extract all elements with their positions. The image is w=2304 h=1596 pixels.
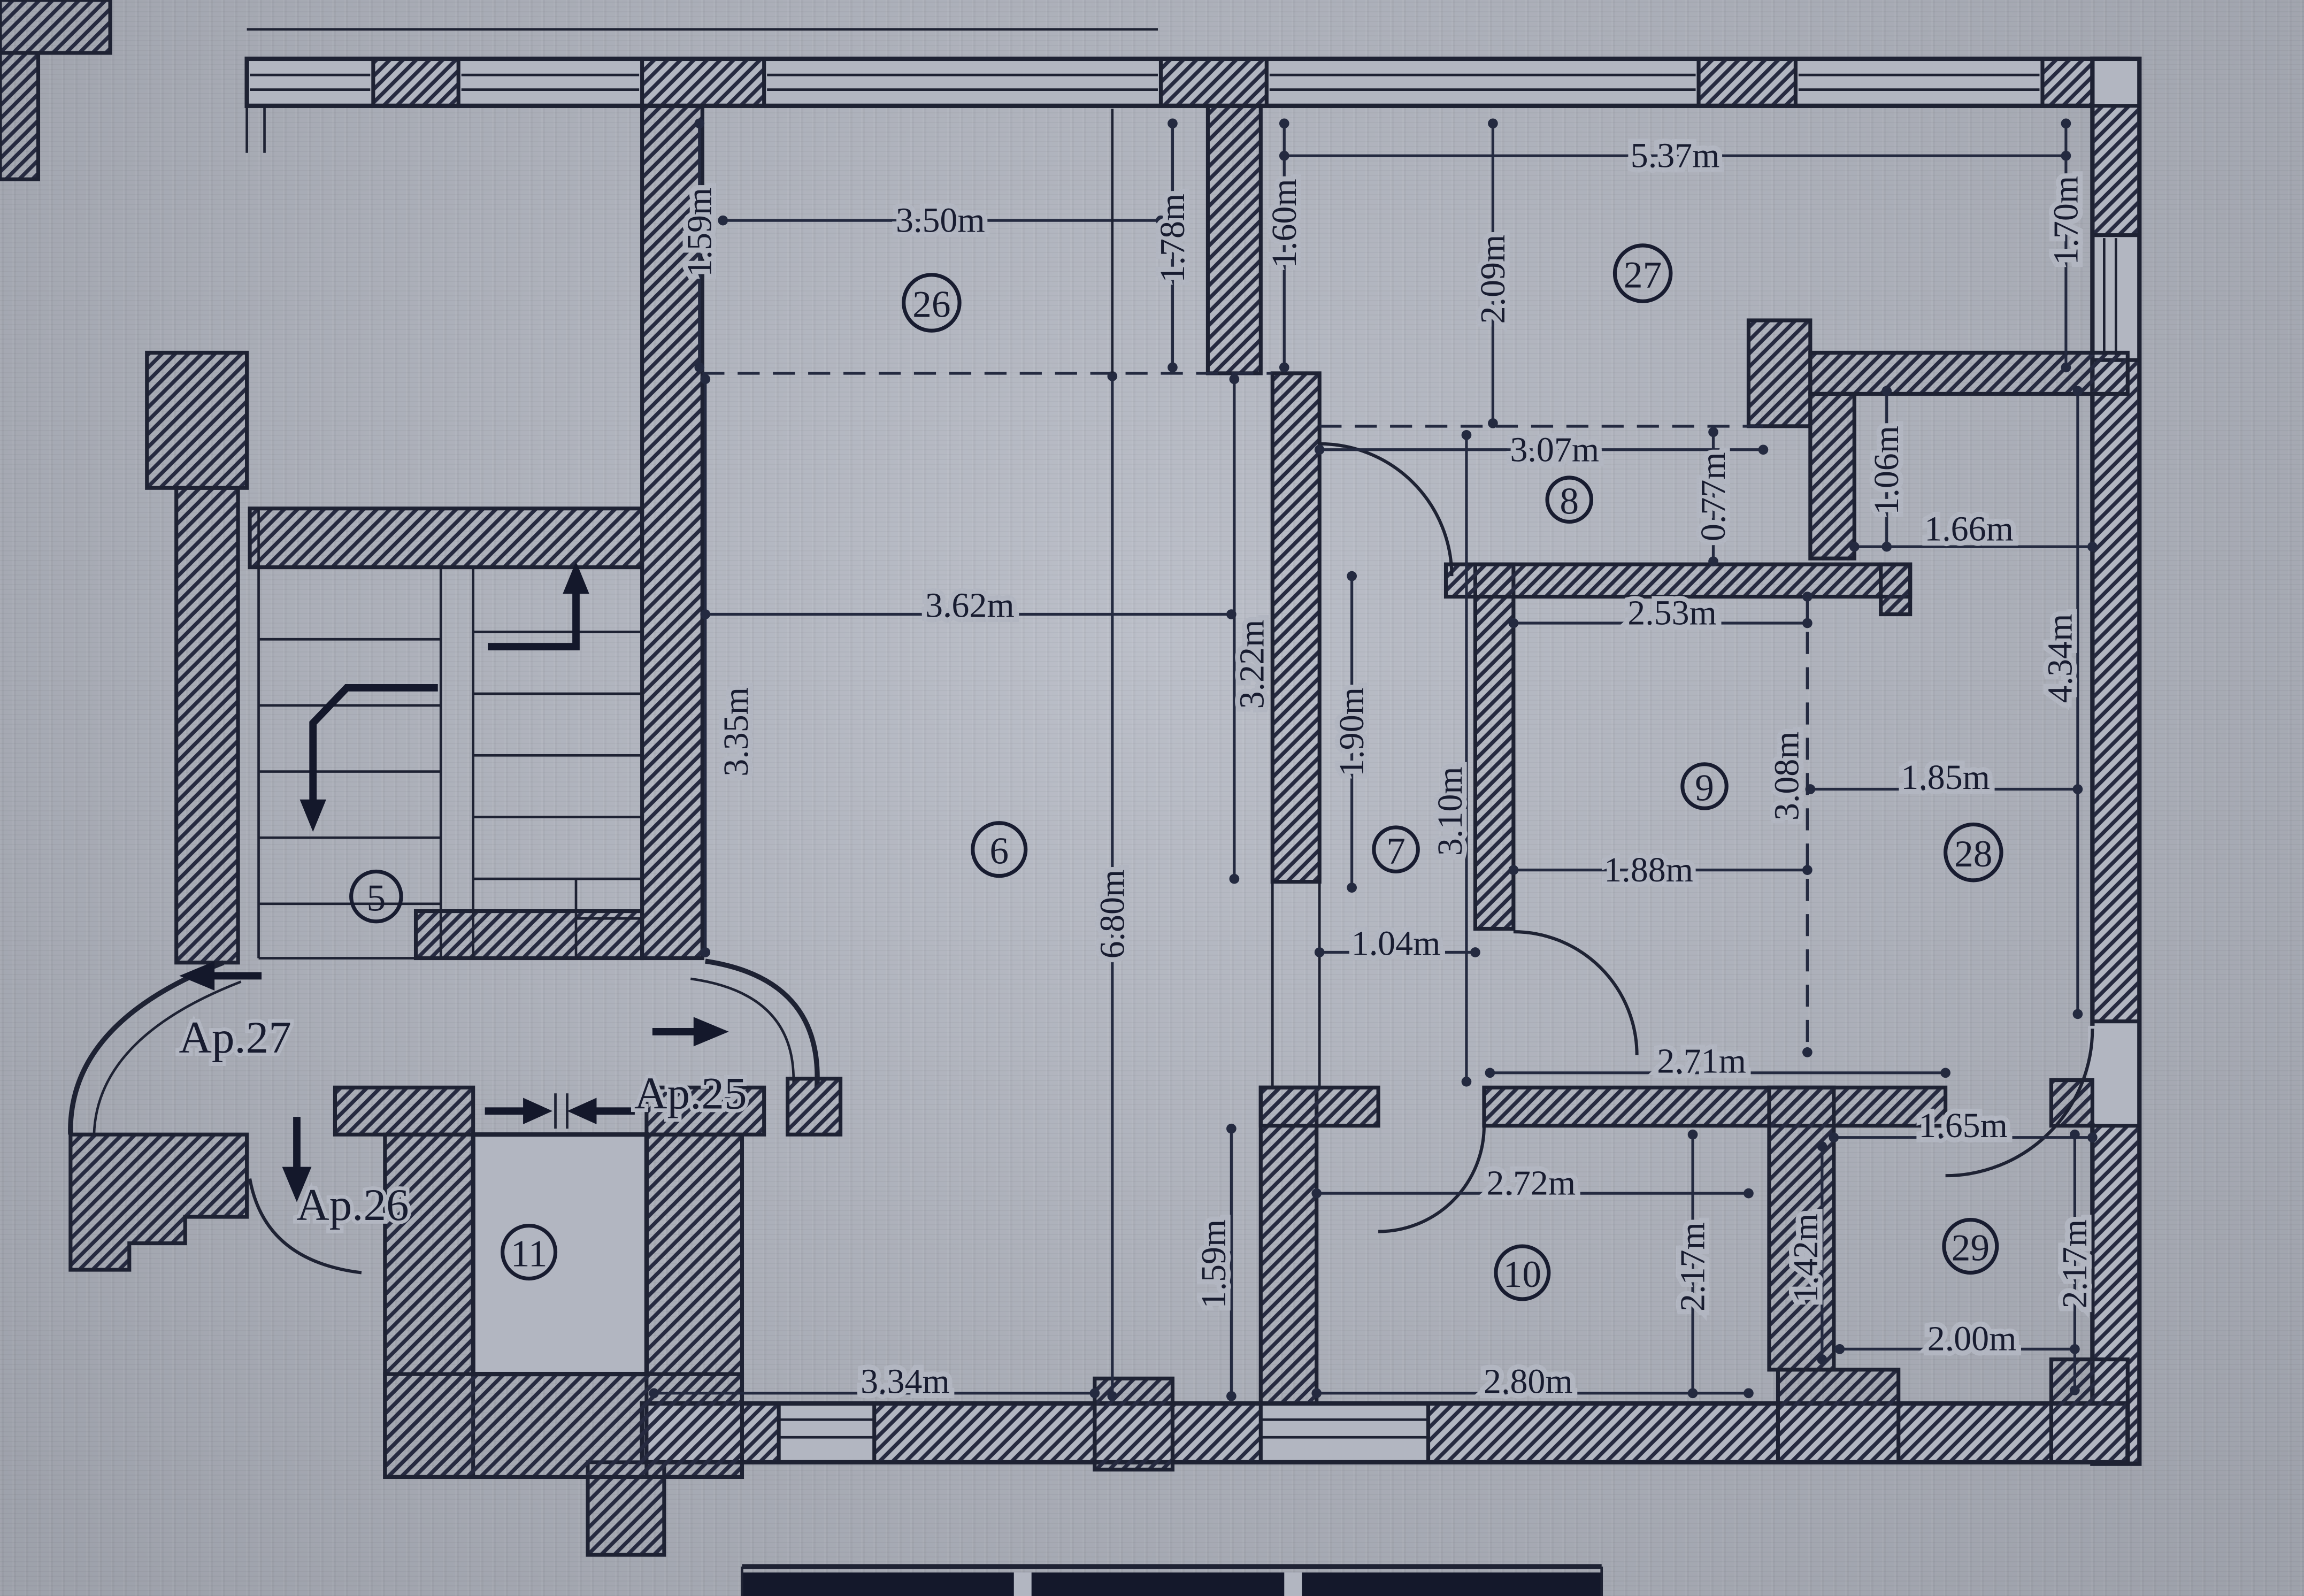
stairwell-top-wall [250,509,642,567]
bottom-wall-hatch [1172,1403,1261,1462]
wall-fragment [0,0,110,53]
dimension-label: 1.88m [1604,850,1693,889]
dimension-label: 1.04m [1351,924,1441,963]
dimension-end-dot [1279,151,1289,161]
stair-treads-left [259,639,441,904]
dimension-end-dot [1347,883,1357,893]
lobby-wall [335,1087,473,1134]
dimension-end-dot [649,1388,659,1398]
dimension-end-dot [2073,784,2083,794]
dimension-end-dot [2087,542,2098,552]
dimension-end-dot [1802,592,1813,602]
room-number: 6 [989,830,1009,872]
wall-6-10 [1261,1087,1316,1403]
dimension-end-dot [1279,363,1289,373]
dimension-end-dot [2073,386,2083,396]
wall-thin-6-hall [1272,882,1319,1088]
room-number: 11 [511,1232,548,1275]
dimension-label: 2.72m [1487,1163,1576,1202]
shaft-wall-bottom [385,1374,742,1477]
dimension-label: 2.00m [1927,1319,2017,1359]
hall-wall [1261,1087,1378,1125]
dimension-label: 5.37m [1631,136,1720,175]
dimension-label: 1.90m [1332,687,1371,777]
dimension-end-dot [2073,1009,2083,1019]
bottom-wall-hatch [1429,1403,2052,1462]
room-number: 27 [1624,254,1662,296]
stairs [259,509,642,958]
dimension-end-dot [1311,1188,1322,1199]
dimension-end-dot [2070,1385,2080,1395]
dimension-end-dot [700,947,710,957]
dimension-end-dot [1834,1344,1845,1354]
dimension-end-dot [1168,118,1178,128]
dimension-label: 0.77m [1694,452,1733,541]
dimension-end-dot [718,216,728,226]
room-number: 8 [1560,480,1579,522]
wall-below-8 [1446,564,1910,596]
dimension-end-dot [2070,1344,2080,1354]
dimension-end-dot [1744,1388,1754,1398]
dimension-label: 1.65m [1918,1106,2008,1145]
dimension-label: 3.62m [925,586,1015,625]
dimension-end-dot [1744,1188,1754,1199]
dimension-label: 2.53m [1627,593,1717,632]
right-wall-hatch [2092,106,2139,235]
room-number: 28 [1954,833,1992,875]
dimension-end-dot [1107,1391,1117,1401]
bottom-wall-hatch [874,1403,1095,1462]
dimension-end-dot [1509,865,1519,875]
top-wall-hatch [373,59,458,106]
dimension-label: 1.78m [1153,194,1192,283]
dimension-end-dot [1090,1388,1100,1398]
dimension-end-dot [1806,784,1816,794]
dimension-end-dot [1279,118,1289,128]
title-block [742,1567,1601,1596]
dimension-label: 2.80m [1484,1362,1573,1401]
wall-10-29-foot [1778,1370,1898,1462]
wall-pier [788,1079,841,1134]
niche-side-wall [1810,394,1854,558]
dimension-end-dot [2061,118,2071,128]
dimension-end-dot [700,374,710,385]
corner-block [2051,1360,2128,1462]
dimension-label: 2.17m [2055,1219,2094,1309]
dimension-label: 3.34m [861,1362,950,1401]
dimension-end-dot [1226,1124,1237,1134]
dimension-end-dot [1802,618,1813,628]
dimension-end-dot [1940,1068,1950,1078]
dimension-end-dot [1168,363,1178,373]
dimension-end-dot [1462,430,1472,440]
dimension-end-dot [1708,427,1718,437]
dimension-end-dot [1829,1132,1839,1142]
stair-block [147,106,703,963]
dimension-end-dot [2070,1130,2080,1140]
dimension-end-dot [1802,865,1813,875]
dimension-end-dot [1230,374,1240,385]
apartment-label: Ap.26 [296,1180,409,1230]
dimension-end-dot [1758,444,1769,455]
dimension-end-dot [1688,1130,1698,1140]
dimension-end-dot [1485,1068,1495,1078]
right-wall-hatch [2092,360,2139,1021]
dimension-label: 3.10m [1431,766,1470,856]
wall-step [1881,564,1910,614]
dimension-end-dot [1226,1391,1237,1401]
dimension-label: 3.50m [896,201,985,240]
dimension-end-dot [1881,386,1892,396]
wall-26-27 [1208,106,1261,373]
dimension-label: 1.70m [2046,176,2085,265]
dimension-label: 3.07m [1510,430,1599,469]
dimension-end-dot [1470,947,1480,957]
left-outer-wall [176,488,238,963]
dimension-label: 2.09m [1473,235,1512,324]
dimension-label: 6.80m [1093,870,1132,959]
dimension-label: 1.85m [1901,758,1990,797]
room-number: 10 [1503,1253,1541,1295]
elevator-door-arrows [485,1098,635,1124]
wall-7-9 [1475,564,1513,929]
dimension-end-dot [1347,571,1357,581]
dimension-end-dot [694,363,704,373]
dimension-label: 4.34m [2040,614,2079,703]
dimension-label: 3.08m [1767,731,1806,820]
room-number: 5 [366,877,386,919]
dimension-end-dot [1488,418,1498,428]
dimension-label: 1.60m [1265,179,1304,268]
stair-stringer [441,567,473,958]
room-number: 26 [912,283,950,325]
door-swing-room8 [1319,444,1451,576]
dimension-end-dot [1708,556,1718,566]
door-swing-room10 [1378,1126,1484,1232]
stair-up-arrow [488,562,589,647]
dimension-end-dot [2061,363,2071,373]
dimension-label: 3.22m [1232,620,1271,709]
dimension-end-dot [1315,947,1325,957]
dimension-end-dot [1509,618,1519,628]
stepped-wall-mass [71,1134,247,1270]
apartment-label: Ap.27 [179,1012,291,1063]
wall-27-8 [1748,320,1810,426]
dimension-end-dot [1488,118,1498,128]
dimension-end-dot [2087,1132,2098,1142]
door-swing-room9 [1514,932,1637,1055]
top-wall-hatch [1699,59,1795,106]
dimension-label: 1.59m [680,188,719,277]
dashed-boundaries [702,373,1812,1057]
blueprint-sheet: 1.59m 3.50m 1.78m 1.60m 2.09m 5.37m 1.70… [0,0,2304,1596]
dimension-end-dot [1802,1047,1813,1057]
dimension-label: 1.59m [1194,1219,1233,1309]
dimension-end-dot [1315,444,1325,455]
room-number: 7 [1386,830,1406,872]
dimension-end-dot [694,118,704,128]
floor-plan-drawing: 1.59m 3.50m 1.78m 1.60m 2.09m 5.37m 1.70… [0,0,2304,1596]
dimension-label: 2.71m [1657,1041,1746,1080]
wall-fragment [0,53,38,179]
room-number: 29 [1952,1226,1990,1269]
dimension-label: 2.17m [1673,1222,1712,1311]
dimension-label: 1.42m [1786,1214,1825,1303]
dimension-end-dot [1817,1354,1827,1364]
dimension-end-dot [1311,1388,1322,1398]
dimension-end-dot [1462,1077,1472,1087]
apartment-label: Ap.25 [634,1068,747,1118]
dimension-label: 3.35m [717,687,756,777]
top-wall-hatch [1161,59,1266,106]
stair-down-arrow [299,688,437,832]
elevator-block [335,1087,764,1477]
elevator-cab [473,1134,647,1374]
hall-wall [1484,1087,1946,1125]
dimension-end-dot [1230,874,1240,884]
elevator-door-jambs [556,1093,567,1129]
top-wall-hatch [642,59,764,106]
dimensions: 1.59m 3.50m 1.78m 1.60m 2.09m 5.37m 1.70… [649,109,2097,1401]
wall-pier [1095,1378,1173,1469]
dimension-end-dot [1849,542,1860,552]
wall-6-7 [1272,373,1319,882]
dimension-label: 1.06m [1867,426,1906,515]
dimension-label: 1.66m [1924,510,2014,549]
left-wall-block [147,352,247,488]
room-number: 9 [1695,766,1714,809]
dimension-end-dot [1817,1141,1827,1152]
